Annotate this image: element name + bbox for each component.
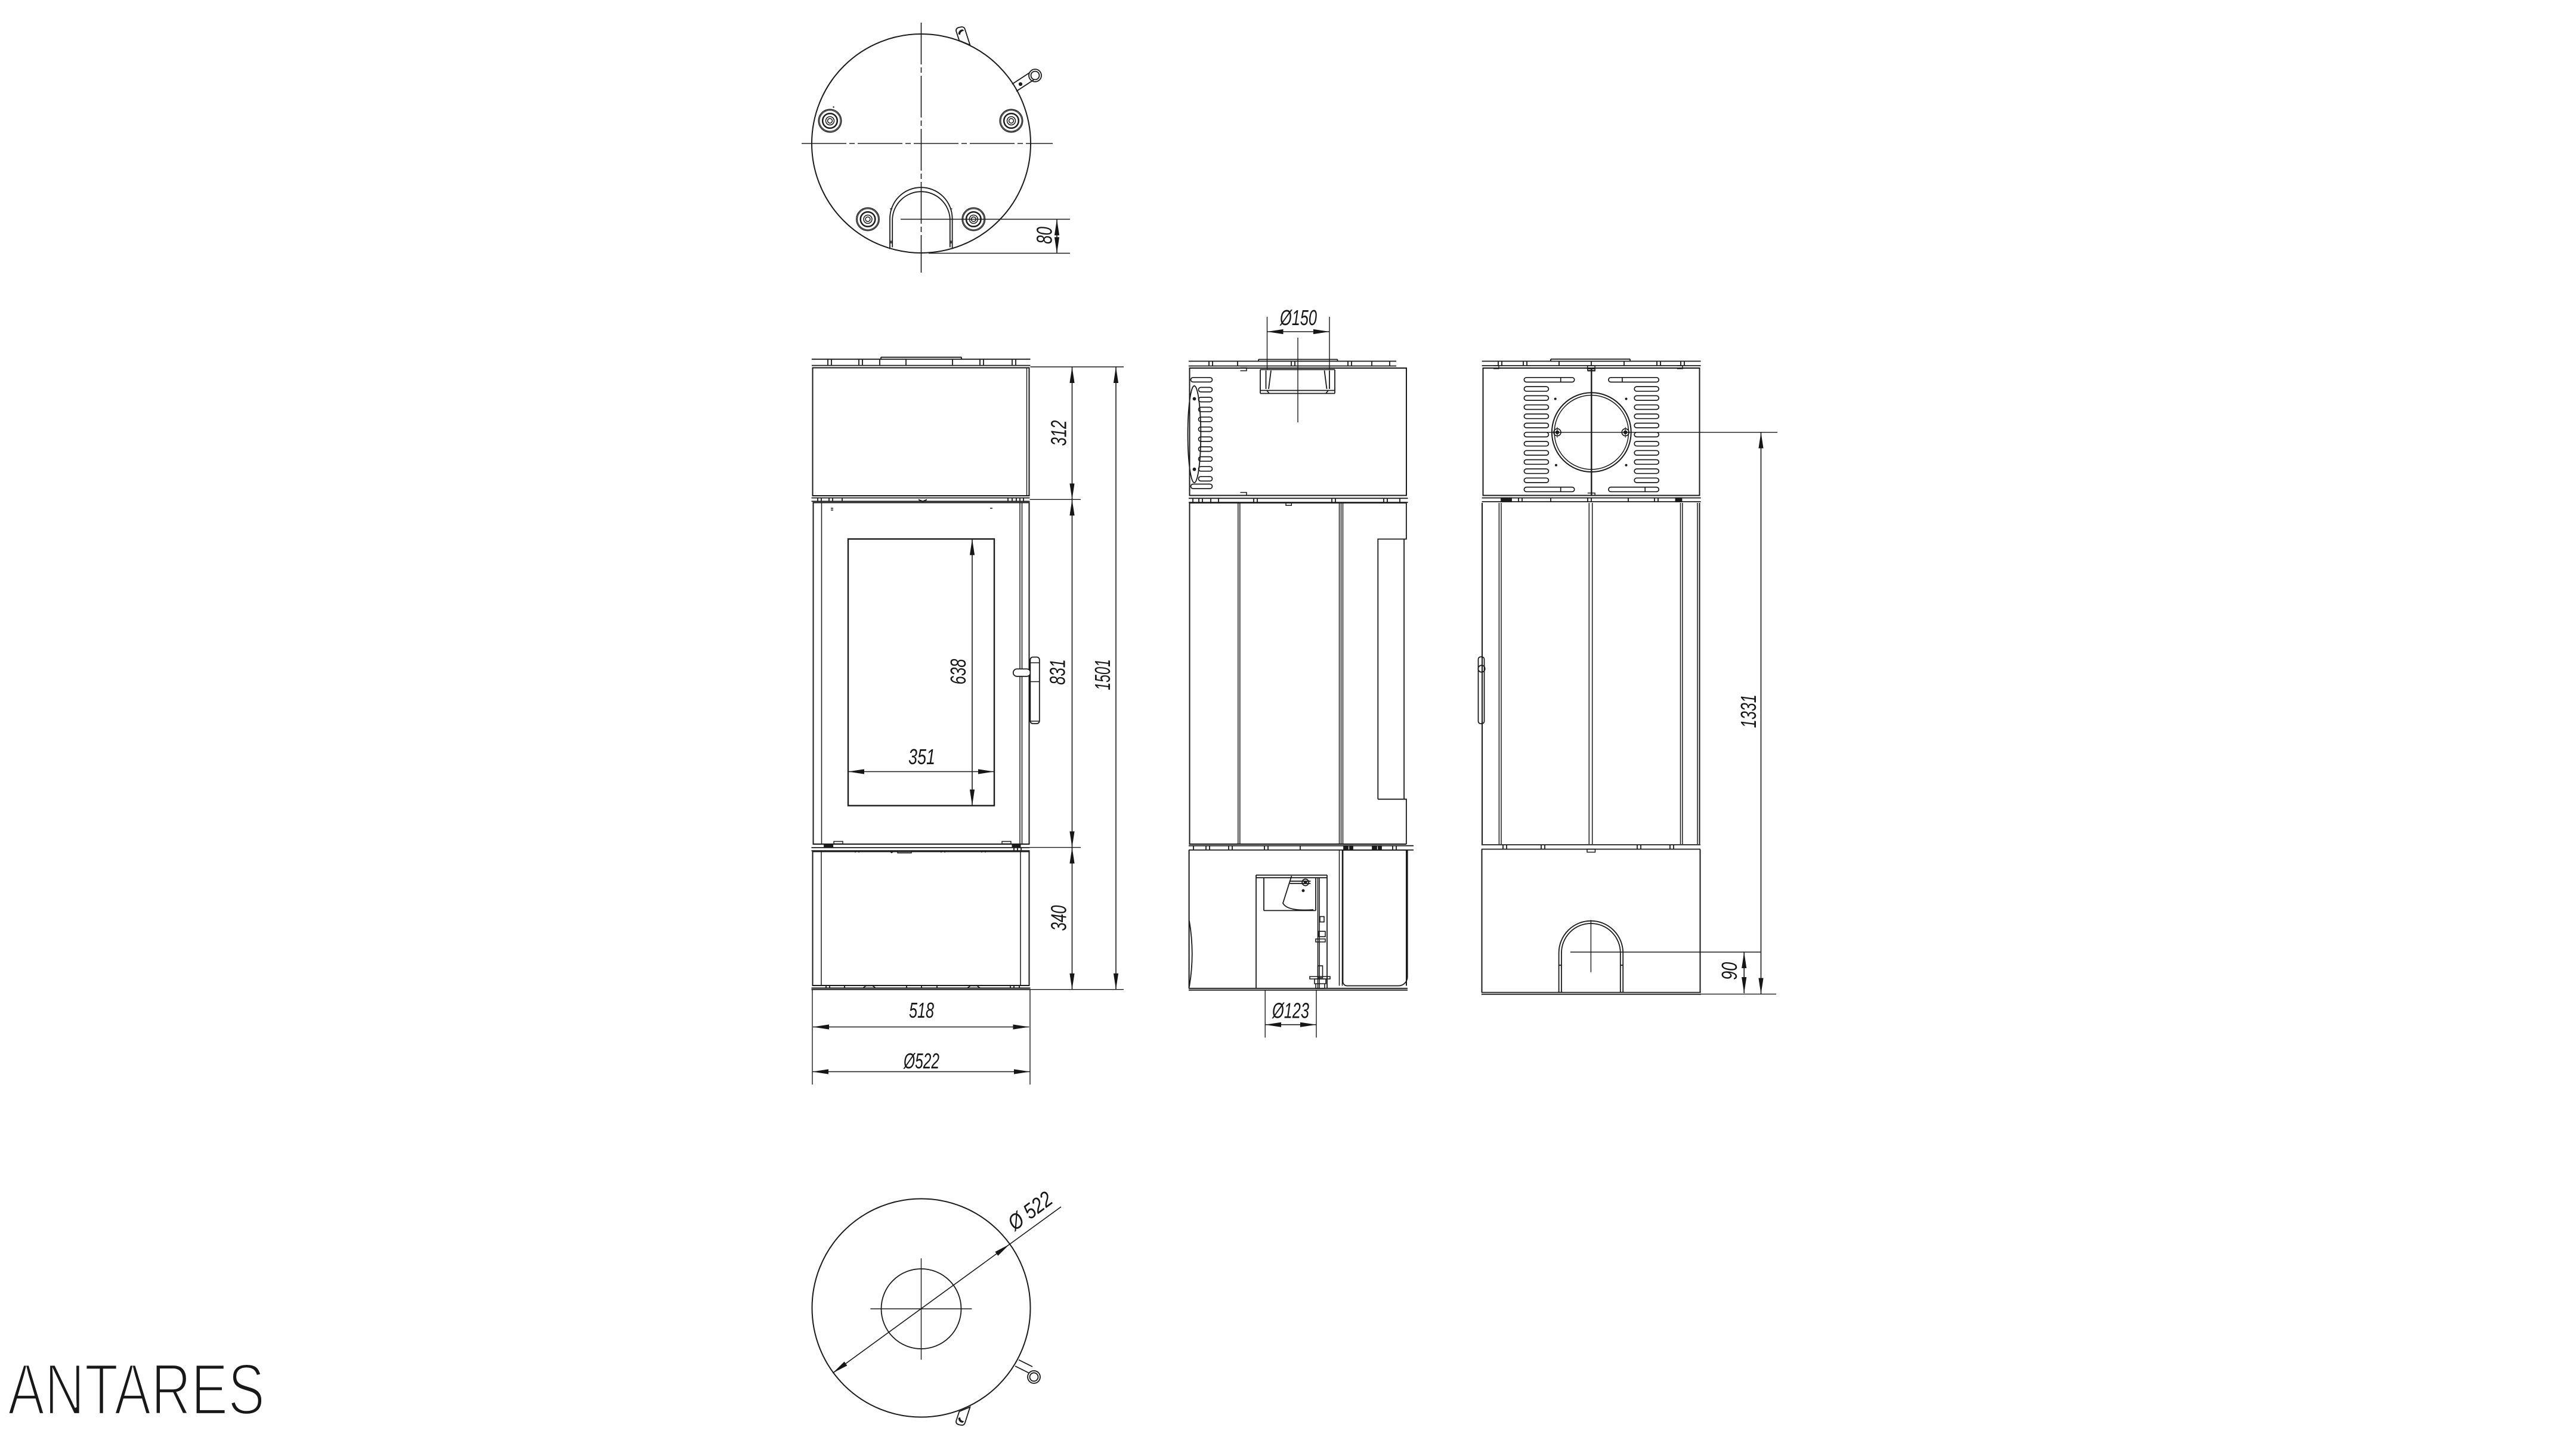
svg-text:1331: 1331: [1736, 694, 1761, 728]
svg-text:351: 351: [908, 744, 935, 769]
svg-text:Ø522: Ø522: [903, 1049, 939, 1073]
svg-text:90: 90: [1717, 962, 1742, 980]
svg-text:831: 831: [1046, 659, 1070, 685]
svg-text:Ø 522: Ø 522: [1003, 1187, 1057, 1235]
svg-text:Ø123: Ø123: [1272, 999, 1309, 1023]
svg-text:80: 80: [1032, 227, 1057, 244]
svg-text:1501: 1501: [1090, 659, 1115, 690]
svg-text:ANTARES: ANTARES: [8, 1349, 265, 1430]
svg-text:340: 340: [1047, 906, 1071, 931]
svg-text:312: 312: [1047, 421, 1071, 446]
svg-text:638: 638: [946, 659, 970, 685]
svg-text:518: 518: [909, 998, 934, 1022]
svg-text:Ø150: Ø150: [1279, 305, 1317, 330]
